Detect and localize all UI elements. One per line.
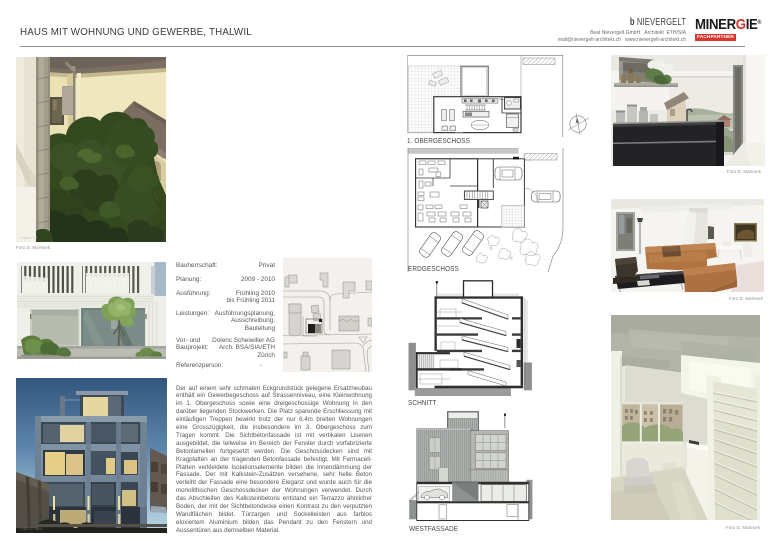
svg-text:Foto D. Mar: Foto D. Mar bbox=[20, 526, 43, 531]
svg-text:Foto b. M: Foto b. M bbox=[20, 235, 37, 240]
